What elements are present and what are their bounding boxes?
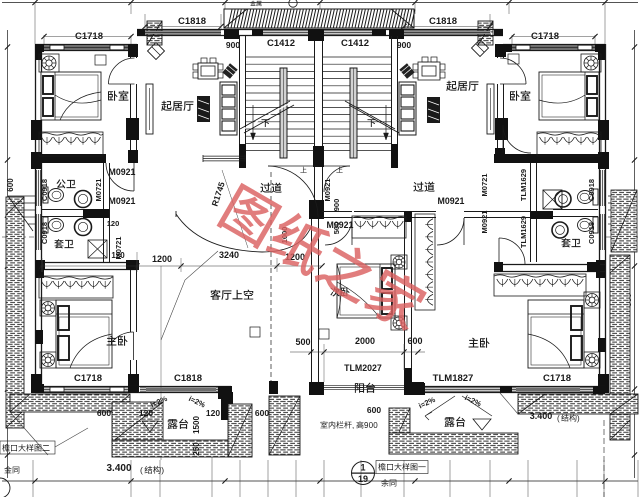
svg-text:600: 600 [6,178,15,192]
svg-text:3.400: 3.400 [530,411,553,421]
svg-text:M0921: M0921 [109,196,136,206]
svg-text:120: 120 [206,408,220,418]
svg-text:1: 1 [360,463,365,473]
svg-text:3.400: 3.400 [106,463,131,474]
svg-text:600: 600 [97,408,111,418]
svg-text:C1718: C1718 [543,373,571,384]
svg-text:(: ( [557,414,560,423]
svg-text:C0918: C0918 [587,179,596,201]
svg-text:600: 600 [255,408,269,418]
svg-text:250: 250 [192,442,201,456]
svg-text:,: , [352,421,354,430]
svg-text:(: ( [140,465,143,475]
svg-text:M0921: M0921 [480,211,489,234]
svg-text:M0921: M0921 [323,179,332,202]
svg-text:19: 19 [358,474,368,484]
svg-text:120: 120 [107,219,120,228]
svg-text:1200: 1200 [152,254,172,264]
svg-text:TLM2027: TLM2027 [344,363,382,373]
svg-text:M0921: M0921 [109,167,136,177]
svg-text:M0921: M0921 [438,196,465,206]
svg-text:C1818: C1818 [178,16,206,27]
svg-text:0: 0 [373,421,378,430]
svg-text:M0721: M0721 [94,179,103,202]
svg-text:C1818: C1818 [429,16,457,27]
svg-text:3240: 3240 [219,250,239,260]
svg-text:1500: 1500 [192,416,201,434]
svg-text:): ) [577,414,580,423]
svg-text:900: 900 [332,199,341,212]
svg-text:2000: 2000 [355,336,375,346]
svg-text:): ) [161,465,164,475]
svg-text:500: 500 [332,222,341,235]
svg-text:TLM1629: TLM1629 [519,216,528,248]
svg-text:500: 500 [295,337,310,347]
svg-text:C1718: C1718 [74,373,102,384]
svg-text:600: 600 [407,336,422,346]
svg-text:TLM1827: TLM1827 [433,373,474,384]
svg-text:TLM1629: TLM1629 [519,169,528,201]
svg-text:900: 900 [397,40,411,50]
svg-text:M0721: M0721 [480,174,489,197]
svg-text:C1412: C1412 [341,38,369,49]
svg-text:900: 900 [226,40,240,50]
svg-text:120: 120 [111,251,125,260]
svg-text:C1818: C1818 [174,373,202,384]
svg-text:600: 600 [367,405,381,415]
svg-text:120: 120 [139,408,153,418]
svg-text:C1412: C1412 [267,38,295,49]
